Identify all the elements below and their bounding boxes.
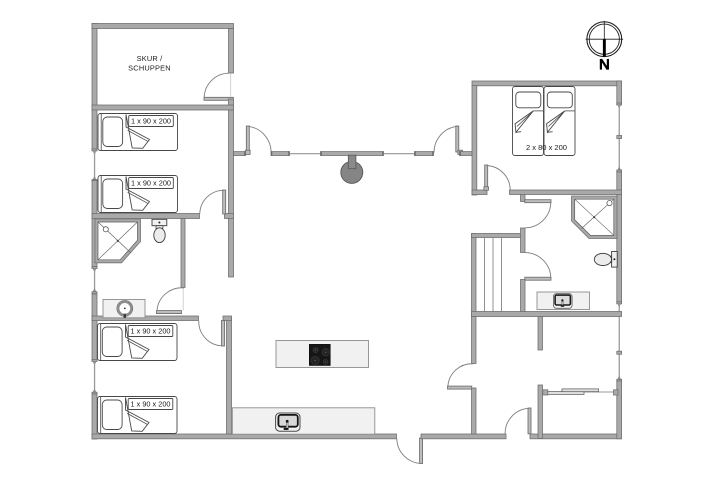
svg-text:SCHUPPEN: SCHUPPEN <box>128 63 171 72</box>
svg-text:SKUR /: SKUR / <box>137 54 164 63</box>
svg-text:2 x 80 x 200: 2 x 80 x 200 <box>526 143 567 152</box>
